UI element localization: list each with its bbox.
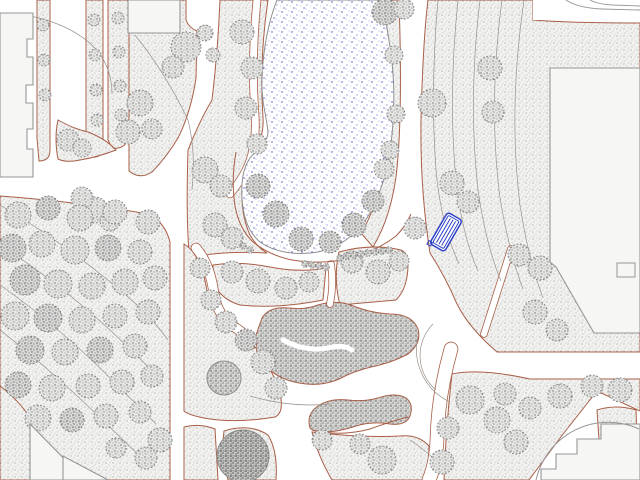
tree — [206, 48, 220, 62]
tree — [235, 329, 257, 351]
tree — [275, 277, 297, 299]
tree — [79, 273, 105, 299]
shrub — [309, 262, 316, 269]
tree — [190, 258, 210, 278]
tree — [504, 430, 528, 454]
tree — [37, 19, 49, 31]
tree — [508, 244, 530, 266]
tree — [116, 120, 140, 144]
tree — [440, 171, 464, 195]
tree — [143, 266, 167, 290]
tree — [385, 46, 403, 64]
tree — [457, 191, 479, 213]
tree — [69, 307, 95, 333]
tree — [103, 200, 127, 224]
tree — [494, 383, 516, 405]
shrub — [247, 247, 254, 254]
tree — [136, 210, 160, 234]
dense-tree — [217, 430, 269, 480]
tree — [478, 56, 502, 80]
tree — [246, 269, 270, 293]
tree — [114, 80, 126, 92]
tree — [482, 101, 504, 123]
tree — [289, 227, 313, 251]
tree — [342, 213, 366, 237]
tree — [362, 190, 384, 212]
tree — [528, 256, 552, 280]
tree — [73, 139, 91, 157]
tree — [39, 375, 65, 401]
tree — [87, 337, 113, 363]
tree — [350, 434, 370, 454]
shrub — [379, 248, 386, 255]
tree — [197, 25, 213, 41]
shrub — [386, 247, 393, 254]
shrub — [372, 249, 379, 256]
tree — [52, 339, 78, 365]
road-strip-top-right — [533, 0, 640, 21]
tree — [16, 336, 44, 364]
tree — [127, 90, 153, 116]
tree — [201, 290, 221, 310]
tree — [113, 46, 125, 58]
tree — [5, 202, 31, 228]
tree — [38, 54, 50, 66]
tree — [162, 56, 184, 78]
tree — [484, 407, 510, 433]
shrub — [358, 251, 365, 258]
tree — [381, 141, 399, 159]
tree — [1, 302, 29, 330]
tree — [34, 304, 62, 332]
tree — [319, 231, 341, 253]
tree — [548, 384, 572, 408]
tree — [136, 300, 160, 324]
tree — [523, 300, 547, 324]
tree — [581, 375, 603, 397]
tree — [129, 401, 151, 423]
site-plan-viewport — [0, 0, 640, 480]
tree — [44, 270, 72, 298]
tree — [546, 319, 568, 341]
tree — [95, 235, 121, 261]
tree — [110, 370, 134, 394]
tree — [437, 417, 459, 439]
tree — [128, 240, 152, 264]
branch-walk — [330, 264, 332, 304]
tree — [312, 430, 332, 450]
tree — [230, 20, 254, 44]
tree — [10, 265, 40, 295]
tree — [418, 89, 446, 117]
tree — [372, 0, 398, 25]
tree — [29, 231, 55, 257]
building-top-center — [128, 0, 180, 33]
shrub — [240, 243, 247, 250]
shrub-tree — [207, 361, 241, 395]
tree — [60, 408, 84, 432]
tree — [112, 269, 138, 295]
tree — [67, 205, 93, 231]
tree — [387, 105, 405, 123]
tree — [241, 57, 263, 79]
tree — [299, 272, 319, 292]
shrub — [323, 264, 330, 271]
shrub — [316, 263, 323, 270]
tree — [368, 446, 396, 474]
shrub — [344, 253, 351, 260]
tree — [210, 175, 232, 197]
tree — [221, 261, 243, 283]
tree — [89, 49, 101, 61]
tree — [215, 311, 237, 333]
tree — [247, 134, 267, 154]
tree — [90, 84, 102, 96]
shrub — [337, 255, 344, 262]
tree — [519, 397, 541, 419]
tree — [94, 404, 118, 428]
tree — [142, 119, 162, 139]
tree — [263, 201, 289, 227]
site-plan-canvas[interactable] — [0, 0, 640, 480]
tree — [404, 217, 426, 239]
tree — [61, 236, 89, 264]
tree — [251, 350, 275, 374]
tree — [235, 97, 257, 119]
tree — [106, 438, 126, 458]
tree — [36, 196, 60, 220]
tree — [5, 372, 31, 398]
tree — [103, 304, 127, 328]
shrub — [365, 250, 372, 257]
tree — [608, 378, 632, 402]
tree — [91, 114, 103, 126]
tree — [366, 260, 390, 284]
tree — [88, 14, 100, 26]
tree — [39, 89, 51, 101]
tree — [374, 159, 394, 179]
shrub — [351, 252, 358, 259]
tree — [430, 450, 454, 474]
patch-bottom-left — [184, 425, 218, 480]
tree — [76, 374, 100, 398]
tree — [246, 174, 270, 198]
shrub — [302, 261, 309, 268]
tree — [456, 386, 484, 414]
tree — [115, 109, 127, 121]
tree — [265, 377, 287, 399]
tree — [112, 12, 124, 24]
tree — [123, 334, 147, 358]
tree — [389, 251, 409, 271]
tree — [25, 405, 51, 431]
tree — [135, 447, 157, 469]
tree — [141, 365, 163, 387]
